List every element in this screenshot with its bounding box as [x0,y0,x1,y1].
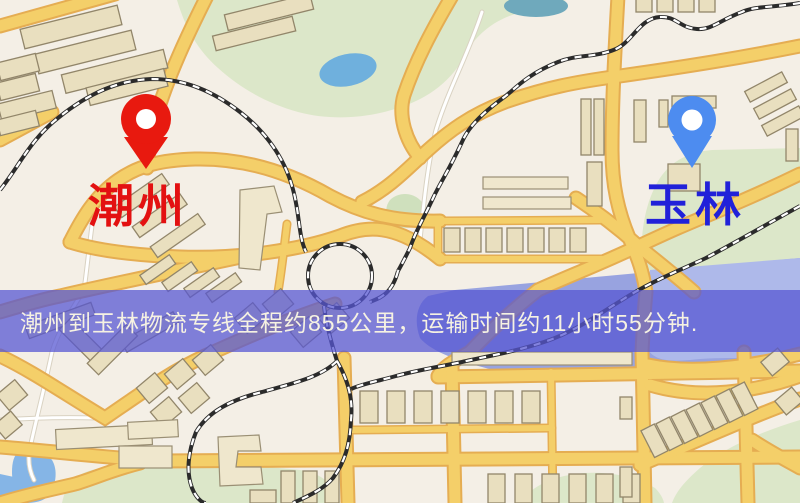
route-info-text: 潮州到玉林物流专线全程约855公里，运输时间约11小时55分钟. [20,304,698,338]
map-canvas: 潮州 玉林 [0,0,800,503]
map-screenshot: 潮州 玉林 潮州到玉林物流专线全程约855公里，运输时间约11小时55分钟. [0,0,800,503]
route-info-banner: 潮州到玉林物流专线全程约855公里，运输时间约11小时55分钟. [0,290,800,352]
origin-city-label: 潮州 [88,180,188,232]
destination-city-label: 玉林 [645,179,745,231]
